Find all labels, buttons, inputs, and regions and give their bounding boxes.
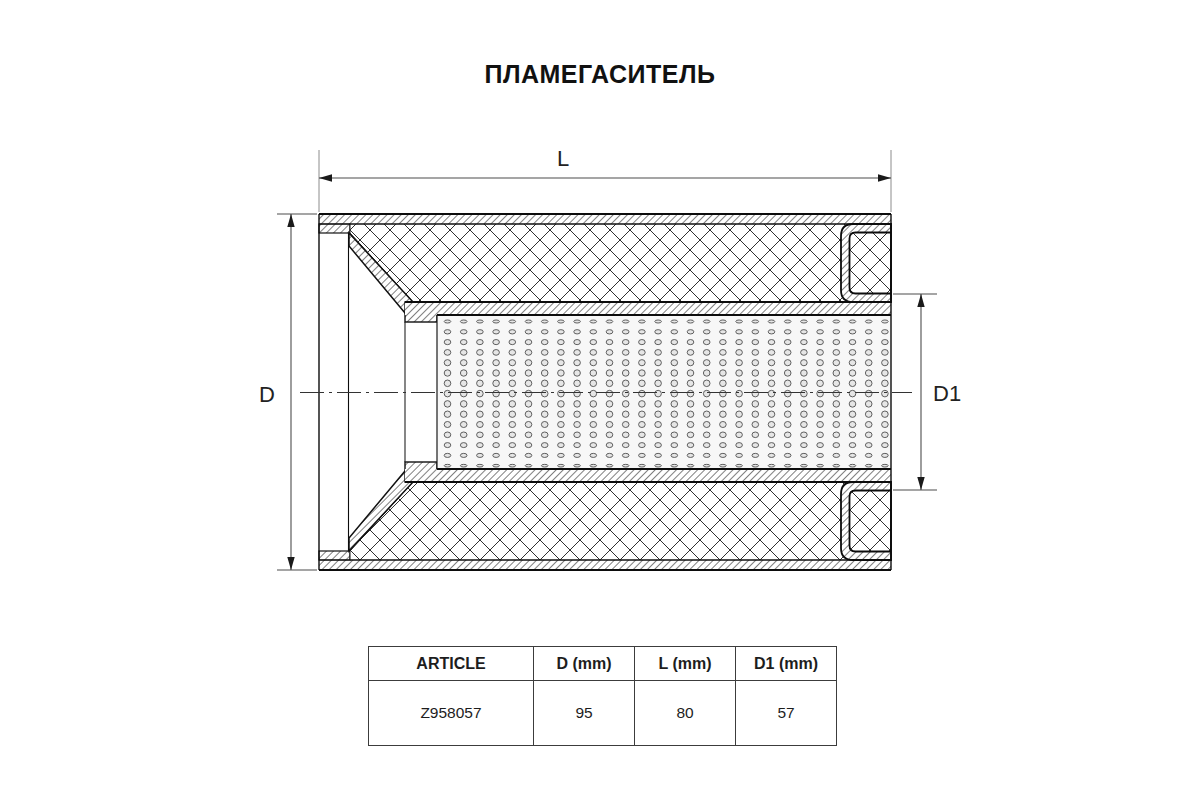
dimension-L: L	[319, 146, 891, 212]
header-d-mm: D (mm)	[534, 647, 635, 681]
spec-table-header-row: ARTICLE D (mm) L (mm) D1 (mm)	[369, 647, 837, 681]
cell-d-value: 95	[534, 681, 635, 746]
cell-d1-value: 57	[736, 681, 837, 746]
dimension-L-label: L	[557, 146, 569, 171]
header-article: ARTICLE	[369, 647, 534, 681]
cell-l-value: 80	[635, 681, 736, 746]
cell-article: Z958057	[369, 681, 534, 746]
table-row: Z958057 95 80 57	[369, 681, 837, 746]
page: ПЛАМЕГАСИТЕЛЬ	[0, 0, 1200, 800]
header-d1-mm: D1 (mm)	[736, 647, 837, 681]
header-l-mm: L (mm)	[635, 647, 736, 681]
dimension-D-label: D	[259, 382, 275, 407]
dimension-D1-label: D1	[933, 381, 961, 406]
spec-table: ARTICLE D (mm) L (mm) D1 (mm) Z958057 95…	[368, 646, 837, 746]
